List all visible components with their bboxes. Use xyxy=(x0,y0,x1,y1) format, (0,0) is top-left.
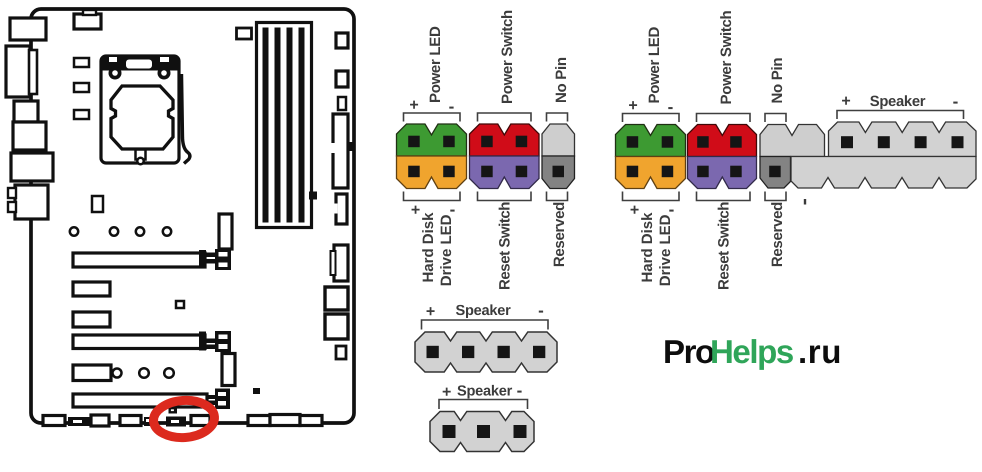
svg-text:+: + xyxy=(442,384,451,401)
svg-text:Reserved: Reserved xyxy=(769,202,786,267)
svg-text:Hard Disk: Hard Disk xyxy=(639,212,656,283)
svg-text:Power Switch: Power Switch xyxy=(718,10,735,104)
svg-text:-: - xyxy=(953,92,959,111)
svg-text:Pro: Pro xyxy=(663,333,714,370)
svg-text:Reset Switch: Reset Switch xyxy=(716,202,733,290)
svg-text:Power LED: Power LED xyxy=(427,26,444,103)
svg-text:Hard Disk: Hard Disk xyxy=(420,212,437,283)
svg-text:+: + xyxy=(630,202,639,219)
svg-text:+: + xyxy=(411,202,420,219)
svg-text:+: + xyxy=(409,97,418,114)
svg-text:Power Switch: Power Switch xyxy=(499,10,516,104)
svg-text:Speaker: Speaker xyxy=(457,384,513,400)
svg-text:Helps: Helps xyxy=(710,333,793,370)
svg-text:-: - xyxy=(517,381,523,400)
svg-text:Drive LED: Drive LED xyxy=(438,214,455,286)
svg-text:-: - xyxy=(449,97,455,116)
svg-text:Speaker: Speaker xyxy=(455,303,511,319)
svg-text:-: - xyxy=(668,98,674,117)
svg-text:Reset Switch: Reset Switch xyxy=(497,202,514,290)
svg-text:Reserved: Reserved xyxy=(551,202,568,267)
svg-text:Power LED: Power LED xyxy=(646,27,663,104)
svg-text:No Pin: No Pin xyxy=(553,57,570,103)
svg-text:Speaker: Speaker xyxy=(870,94,926,110)
svg-text:+: + xyxy=(628,98,637,115)
svg-text:No Pin: No Pin xyxy=(769,58,786,104)
svg-text:+: + xyxy=(426,304,435,321)
svg-text:+: + xyxy=(841,93,850,110)
svg-text:-: - xyxy=(538,301,544,320)
svg-text:Drive LED: Drive LED xyxy=(657,214,674,286)
svg-text:.ru: .ru xyxy=(798,333,842,370)
